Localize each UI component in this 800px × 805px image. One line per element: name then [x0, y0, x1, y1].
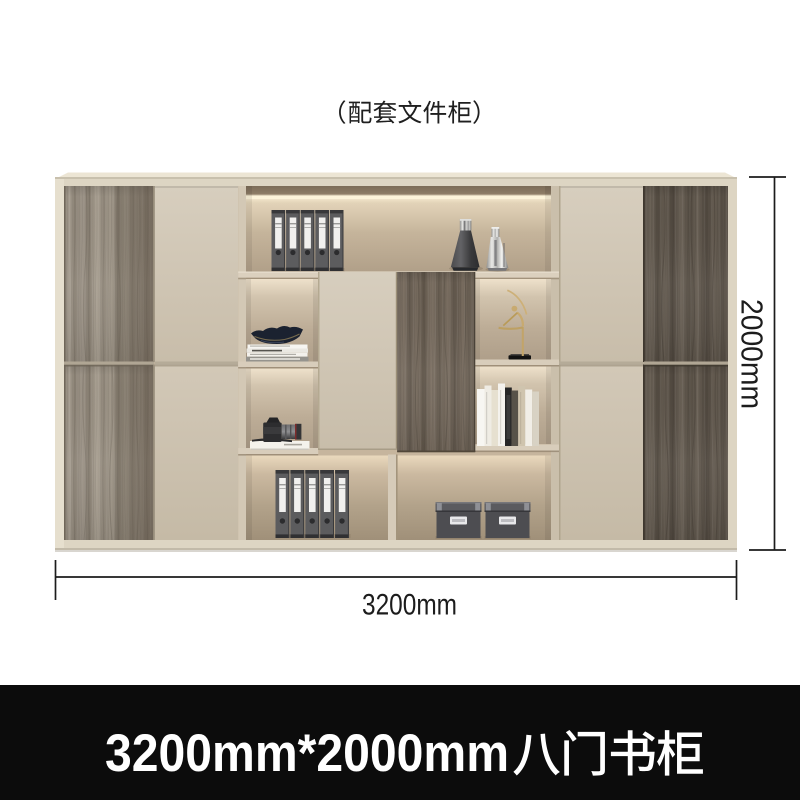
svg-text:3200mm: 3200mm — [362, 589, 457, 622]
svg-text:3200mm*2000mm: 3200mm*2000mm — [105, 724, 509, 783]
svg-text:2000mm: 2000mm — [735, 299, 770, 409]
